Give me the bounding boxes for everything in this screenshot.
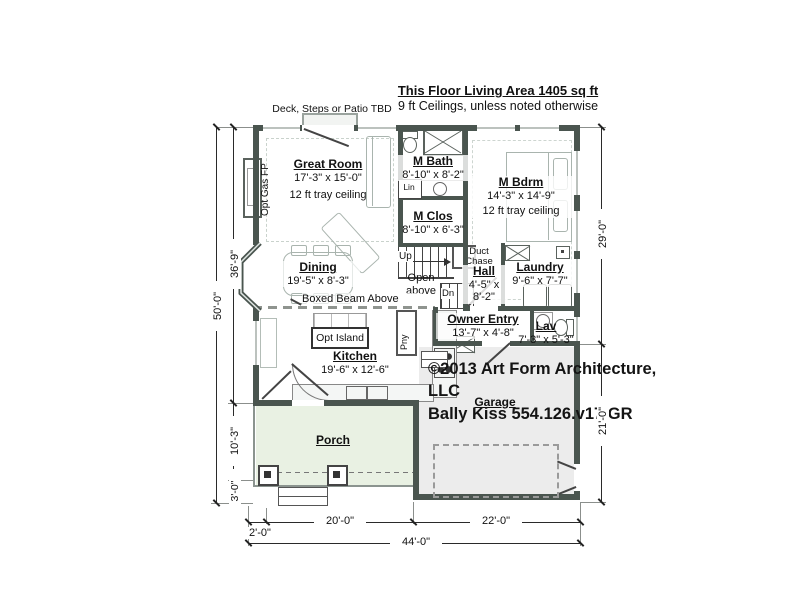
kitchen-dims: 19'-6" x 12'-6" [298,364,412,377]
room-label-hall: Hall 4'-5" x 8'-2" [462,265,506,304]
dim-bottom-total: 44'-0" [390,536,442,548]
copyright-line2: Bally Kiss 554.126.v17 GR [428,403,690,425]
room-label-m-bdrm: M Bdrm 14'-3" x 14'-9" 12 ft tray ceilin… [468,176,574,218]
porch-post [258,465,279,486]
porch-name: Porch [296,434,370,448]
bdrm-door-gap [470,306,498,311]
dim-left-upper: 36'-9" [229,239,241,289]
garage-car-dashed [433,444,559,498]
laundry-sink-drain [561,250,564,253]
m-clos-dims: 8'-10" x 6'-3" [398,224,468,237]
lin-label: Lin [399,183,419,193]
room-label-m-clos: M Clos 8'-10" x 6'-3" [398,210,468,236]
pantry-label: Pny [399,312,409,350]
window [574,150,580,196]
dining-chair [291,245,307,256]
ceilings-text: 9 ft Ceilings, unless noted otherwise [392,99,604,113]
stairs-up-arrowhead [444,258,451,266]
wall-clos-hall [398,243,468,247]
room-label-dining: Dining 19'-5" x 8'-3" [276,261,360,287]
dim-left-mid: 10'-3" [229,416,241,466]
dryer [548,284,572,308]
shower-x-icon [423,129,463,155]
m-bdrm-note: 12 ft tray ceiling [468,205,574,218]
plan-title: This Floor Living Area 1405 sq ft 9 ft C… [392,84,604,113]
vanity-sink [433,182,447,196]
floor-plan-drawing: This Floor Living Area 1405 sq ft 9 ft C… [0,0,801,600]
m-bdrm-dims: 14'-3" x 14'-9" [468,190,574,203]
porch-steps [278,496,328,506]
opt-island-box: Opt Island [311,327,369,349]
laundry-dims: 9'-6" x 7'-7" [505,275,575,288]
dim-bottom-offset: 2'-0" [246,527,274,539]
room-label-porch: Porch [296,434,370,448]
dim-bottom-left: 20'-0" [314,515,366,527]
kitchen-porch-door-gap [292,400,324,406]
window [253,320,259,366]
dim-right-line [601,127,602,503]
porch-post [327,465,348,486]
window [519,125,560,131]
stairs-up-arrow [408,261,446,262]
copyright-line1: ©2013 Art Form Architecture, LLC [428,358,690,403]
dining-chair [313,245,329,256]
room-label-laundry: Laundry 9'-6" x 7'-7" [505,261,575,287]
window [357,125,397,131]
room-label-m-bath: M Bath 8'-10" x 8'-2" [398,155,468,181]
kitchen-sink [346,386,388,400]
dining-name: Dining [276,261,360,275]
wall-kitchen-bottom [253,400,419,406]
copyright-block: ©2013 Art Form Architecture, LLC Bally K… [428,358,690,425]
hall-dims: 4'-5" x 8'-2" [462,279,506,304]
dining-dims: 19'-5" x 8'-3" [276,275,360,288]
dim-right-upper: 29'-0" [597,209,609,259]
up-label: Up [398,251,413,262]
m-bath-name: M Bath [398,155,468,169]
m-bdrm-name: M Bdrm [468,176,574,190]
window [262,125,301,131]
laundry-name: Laundry [505,261,575,275]
room-label-kitchen: Kitchen 19'-6" x 12'-6" [298,350,412,376]
island-cabinets [313,313,367,328]
dim-right-lower: 21'-0" [597,396,609,446]
dim-left-total: 50'-0" [212,281,224,331]
opt-island-label: Opt Island [313,332,367,344]
great-room-name: Great Room [258,158,398,172]
boxed-beam-line [253,306,435,309]
wall-garage-left [413,400,419,500]
great-room-note: 12 ft tray ceiling [258,189,398,202]
ext-line [248,506,249,546]
washer [523,284,547,308]
window [476,125,516,131]
toilet-bowl [403,137,417,153]
dim-left-lower: 3'-0" [229,469,241,513]
lin-closet: Lin [398,179,422,199]
m-bath-dims: 8'-10" x 8'-2" [398,169,468,182]
closet-door-leaf [261,370,291,399]
dining-chair [335,245,351,256]
dim-bottom-right: 22'-0" [470,515,522,527]
lav-dims: 7'-3" x 5'-3" [516,334,576,347]
hall-name: Hall [462,265,506,279]
great-room-dims: 17'-3" x 15'-0" [258,172,398,185]
m-clos-name: M Clos [398,210,468,224]
boxed-beam-label: Boxed Beam Above [302,293,422,306]
living-area-text: This Floor Living Area 1405 sq ft [392,84,604,99]
room-label-great-room: Great Room 17'-3" x 15'-0" 12 ft tray ce… [258,158,398,202]
wall-laundry-bottom [501,306,574,310]
window-seat [260,318,277,368]
room-label-lav: Lav 7'-3" x 5'-3" [516,320,576,346]
porch-edge-left [253,406,255,486]
kitchen-name: Kitchen [298,350,412,364]
lav-name: Lav [516,320,576,334]
window [574,210,580,252]
